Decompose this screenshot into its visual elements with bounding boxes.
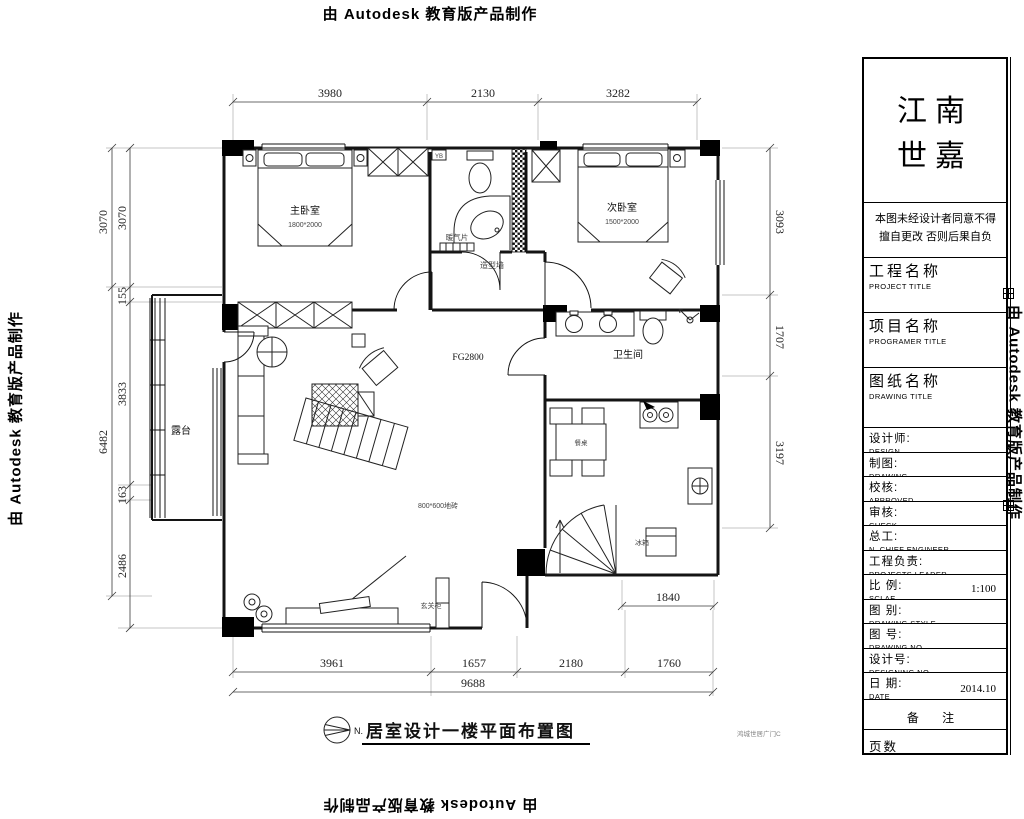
label-second-bed-size: 1500*2000 — [605, 219, 639, 226]
label-fridge: 冰箱 — [635, 538, 649, 547]
dim-bottom-right: 1840 — [656, 590, 680, 604]
field-cn: 工程负责: — [869, 553, 1002, 569]
titleblock-brand: 江南 世嘉 — [864, 59, 1006, 202]
dim-left-inner-5: 2486 — [115, 554, 129, 578]
living-room-furniture — [238, 326, 449, 628]
label-dining-table: 餐桌 — [575, 438, 589, 447]
dim-left-outer-2: 6482 — [96, 430, 110, 454]
field-cn: 设计师: — [869, 430, 1002, 446]
master-bedroom-furniture — [238, 148, 428, 328]
tb-field-drawing-title: 图纸名称 DRAWING TITLE — [864, 367, 1006, 427]
dim-right-1: 3093 — [773, 210, 787, 234]
tb-field-programer-title: 项目名称 PROGRAMER TITLE — [864, 312, 1006, 367]
top-bathroom-fixtures — [432, 150, 510, 251]
dim-bottom-total: 9688 — [461, 676, 485, 690]
field-cn: 制图: — [869, 455, 1002, 471]
field-cn: 项目名称 — [869, 315, 1002, 336]
label-yb: YB — [435, 154, 443, 160]
north-label: N. — [354, 726, 363, 736]
tb-field-date: 日 期: DATE 2014.10 — [864, 672, 1006, 699]
dim-left-inner-3: 3833 — [115, 382, 129, 406]
field-en: PROJECT TITLE — [869, 282, 1002, 291]
label-radiator: 暖气片 — [446, 232, 469, 242]
footnote-text: 鸿城世居广门C — [737, 729, 781, 738]
dim-bottom-2: 1657 — [462, 656, 486, 670]
label-entry-cabinet: 玄关柜 — [421, 601, 442, 610]
mosaic-wall-strip — [512, 148, 526, 252]
dim-top-1: 3980 — [318, 86, 342, 100]
dim-top-3: 3282 — [606, 86, 630, 100]
field-cn: 审核: — [869, 504, 1002, 520]
tb-field-check: 审核: CHECK — [864, 501, 1006, 526]
date-value: 2014.10 — [960, 683, 996, 695]
tb-field-designing-no: 设计号: DESIGNING NO — [864, 648, 1006, 673]
dim-right-3: 3197 — [773, 441, 787, 465]
field-cn: 页数 — [869, 736, 1002, 755]
field-en: DRAWING TITLE — [869, 392, 1002, 401]
label-master-bedroom: 主卧室 — [290, 204, 320, 217]
drawing-sheet: 由 Autodesk 教育版产品制作 由 Autodesk 教育版产品制作 由 … — [0, 0, 1024, 819]
winder-stair — [546, 505, 616, 574]
dim-right-2: 1707 — [773, 325, 787, 349]
tb-field-design: 设计师: DESIGN — [864, 427, 1006, 452]
title-block: 江南 世嘉 本图未经设计者同意不得 擅自更改 否则后果自负 工程名称 PROJE… — [862, 57, 1008, 755]
tb-field-project-title: 工程名称 PROJECT TITLE — [864, 257, 1006, 312]
drawing-caption: N. 居室设计一楼平面布置图 鸿城世居广门C — [324, 717, 781, 744]
kitchen-dining-furniture — [550, 401, 712, 556]
field-cn: 图 别: — [869, 602, 1002, 618]
field-cn: 图纸名称 — [869, 370, 1002, 391]
scale-value: 1:100 — [971, 583, 996, 595]
middle-bathroom-fixtures — [556, 309, 699, 344]
tb-field-projects-leader: 工程负责: PROJECTS LEADER — [864, 550, 1006, 575]
dim-bottom-3: 2180 — [559, 656, 583, 670]
fold-mark — [1003, 288, 1014, 299]
label-floor-height: FG2800 — [452, 353, 483, 363]
label-master-bed-size: 1800*2000 — [288, 222, 322, 229]
field-cn: 校核: — [869, 479, 1002, 495]
sheet-frame-line — [1010, 57, 1011, 755]
titleblock-disclaimer: 本图未经设计者同意不得 擅自更改 否则后果自负 — [864, 202, 1006, 257]
field-cn: 备 注 — [869, 709, 1002, 726]
dim-bottom-1: 3961 — [320, 656, 344, 670]
tb-field-chief-engineer: 总工: N. CHIEF ENGINEER — [864, 525, 1006, 550]
caption-text: 居室设计一楼平面布置图 — [366, 721, 575, 741]
tb-field-drawing-no: 图 号: DRAWING NO. — [864, 623, 1006, 648]
field-cn: 设计号: — [869, 651, 1002, 667]
disclaimer-line-2: 擅自更改 否则后果自负 — [869, 229, 1002, 247]
tb-field-approved: 校核: APPROVED — [864, 476, 1006, 501]
label-second-bedroom: 次卧室 — [607, 201, 637, 214]
field-cn: 工程名称 — [869, 260, 1002, 281]
field-cn: 图 号: — [869, 626, 1002, 642]
tb-field-scale: 比 例: SCLAE 1:100 — [864, 574, 1006, 599]
brand-line-1: 江南 — [864, 89, 1006, 134]
fold-mark — [1003, 500, 1014, 511]
terrace-walls — [152, 295, 222, 520]
dim-left-outer-1: 3070 — [96, 210, 110, 234]
tb-field-pages: 页数 — [864, 729, 1006, 757]
dim-bottom-4: 1760 — [657, 656, 681, 670]
field-cn: 总工: — [869, 528, 1002, 544]
label-bathroom: 卫生间 — [613, 348, 643, 361]
label-terrace: 露台 — [171, 424, 191, 437]
dim-left-inner-1: 3070 — [115, 206, 129, 230]
tb-field-remark: 备 注 — [864, 699, 1006, 729]
dim-left-inner-2: 155 — [115, 287, 129, 305]
dim-left-inner-4: 163 — [115, 486, 129, 504]
dim-top-2: 2130 — [471, 86, 495, 100]
disclaimer-line-1: 本图未经设计者同意不得 — [869, 211, 1002, 229]
label-tile: 800*600地砖 — [418, 501, 458, 510]
label-feature-wall: 造型墙 — [480, 260, 504, 270]
tb-field-drawing-style: 图 别: DRAWING STYLE — [864, 599, 1006, 624]
brand-line-2: 世嘉 — [864, 134, 1006, 179]
tb-field-drawing: 制图: DRAWING — [864, 452, 1006, 477]
field-en: PROGRAMER TITLE — [869, 337, 1002, 346]
